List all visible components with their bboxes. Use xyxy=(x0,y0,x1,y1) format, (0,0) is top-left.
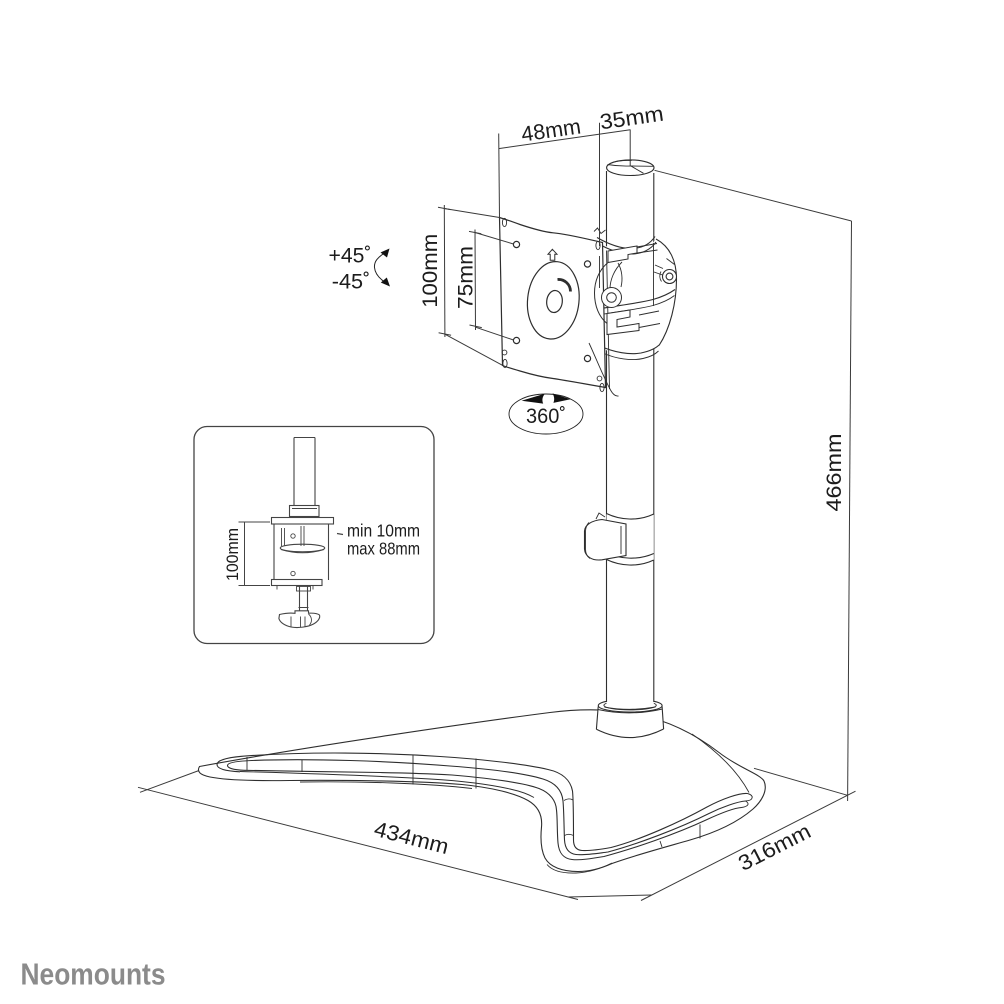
svg-text:100mm: 100mm xyxy=(223,528,242,581)
svg-text:Neomounts: Neomounts xyxy=(21,957,166,992)
svg-text:75mm: 75mm xyxy=(453,246,477,309)
svg-text:+45˚: +45˚ xyxy=(329,244,372,268)
svg-text:360˚: 360˚ xyxy=(526,404,566,428)
svg-text:max 88mm: max 88mm xyxy=(347,539,420,559)
svg-text:min 10mm: min 10mm xyxy=(347,521,420,541)
svg-text:-45˚: -45˚ xyxy=(332,270,371,294)
svg-text:100mm: 100mm xyxy=(418,234,442,308)
svg-text:466mm: 466mm xyxy=(822,434,846,512)
